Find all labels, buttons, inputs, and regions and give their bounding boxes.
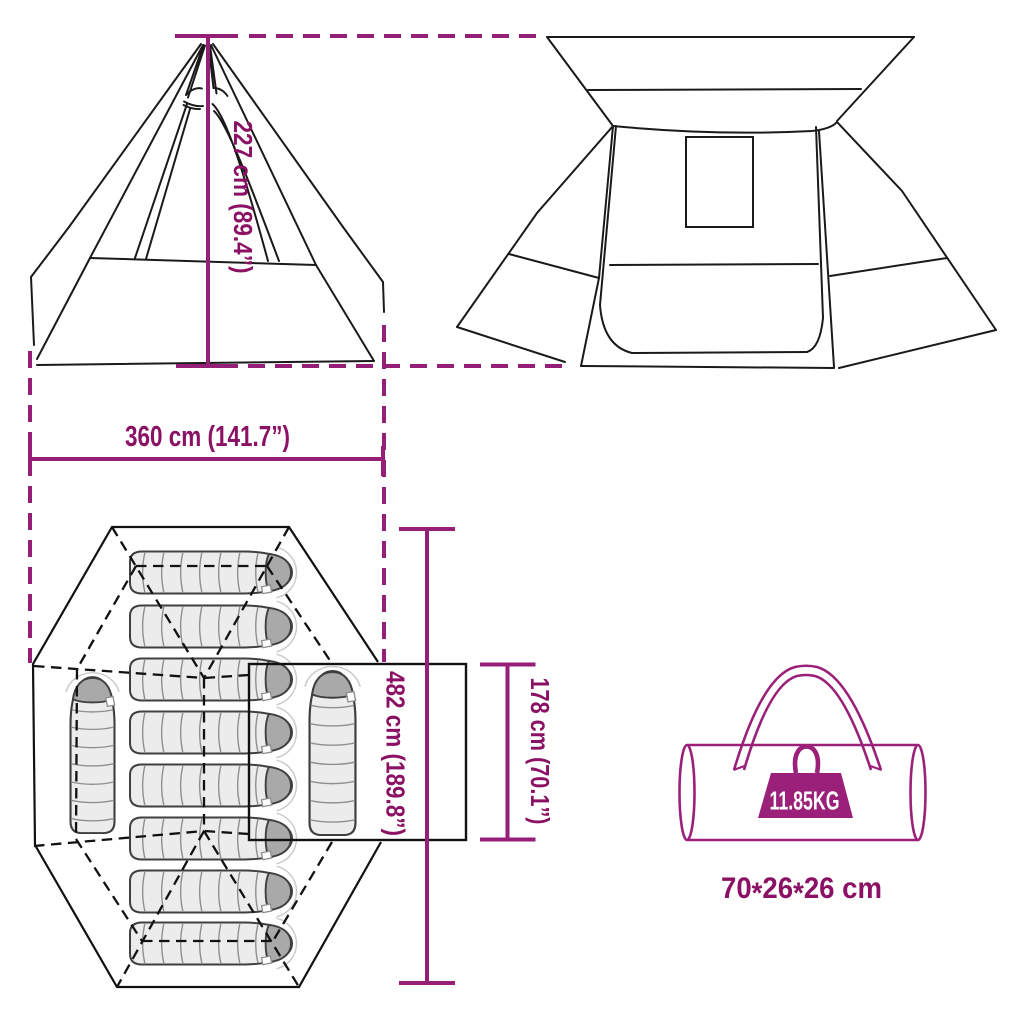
- svg-text:70*26*26 cm: 70*26*26 cm: [721, 872, 882, 910]
- svg-text:482 cm (189.8”): 482 cm (189.8”): [381, 671, 411, 836]
- svg-text:227 cm (89.4”): 227 cm (89.4”): [228, 121, 258, 274]
- svg-text:178 cm (70.1”): 178 cm (70.1”): [525, 678, 555, 825]
- svg-text:11.85KG: 11.85KG: [770, 786, 840, 816]
- svg-text:360 cm (141.7”): 360 cm (141.7”): [125, 421, 290, 453]
